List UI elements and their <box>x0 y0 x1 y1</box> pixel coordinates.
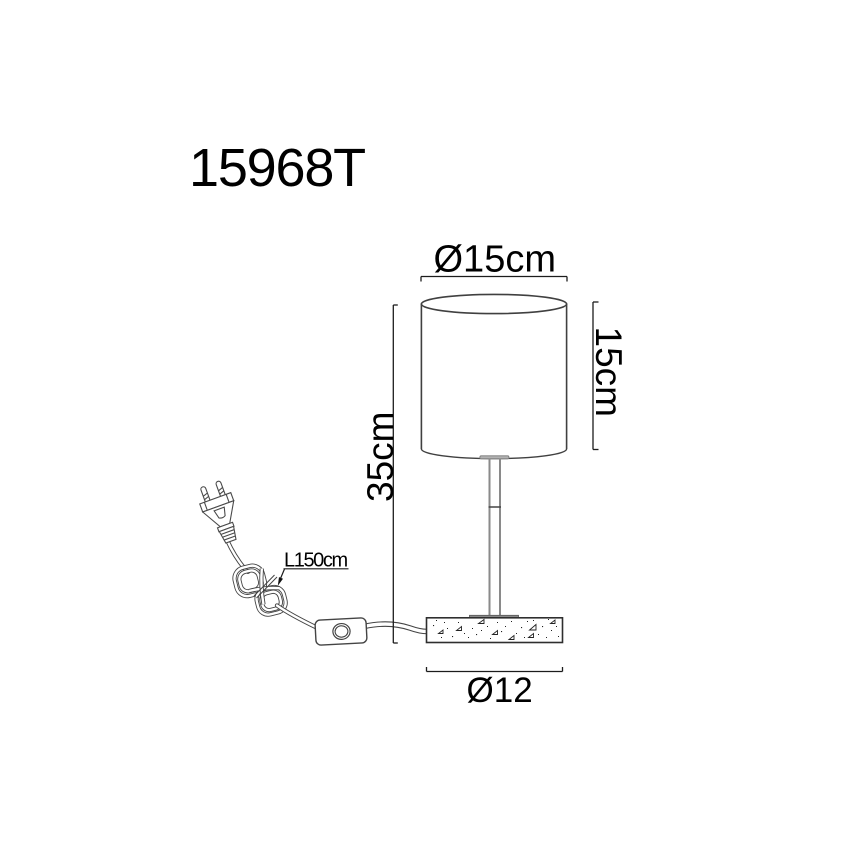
svg-text:Ø12: Ø12 <box>467 671 533 710</box>
svg-text:Ø15cm: Ø15cm <box>434 239 556 281</box>
svg-text:15cm: 15cm <box>588 327 629 417</box>
svg-text:15968T: 15968T <box>189 138 365 198</box>
svg-text:35cm: 35cm <box>360 412 401 502</box>
